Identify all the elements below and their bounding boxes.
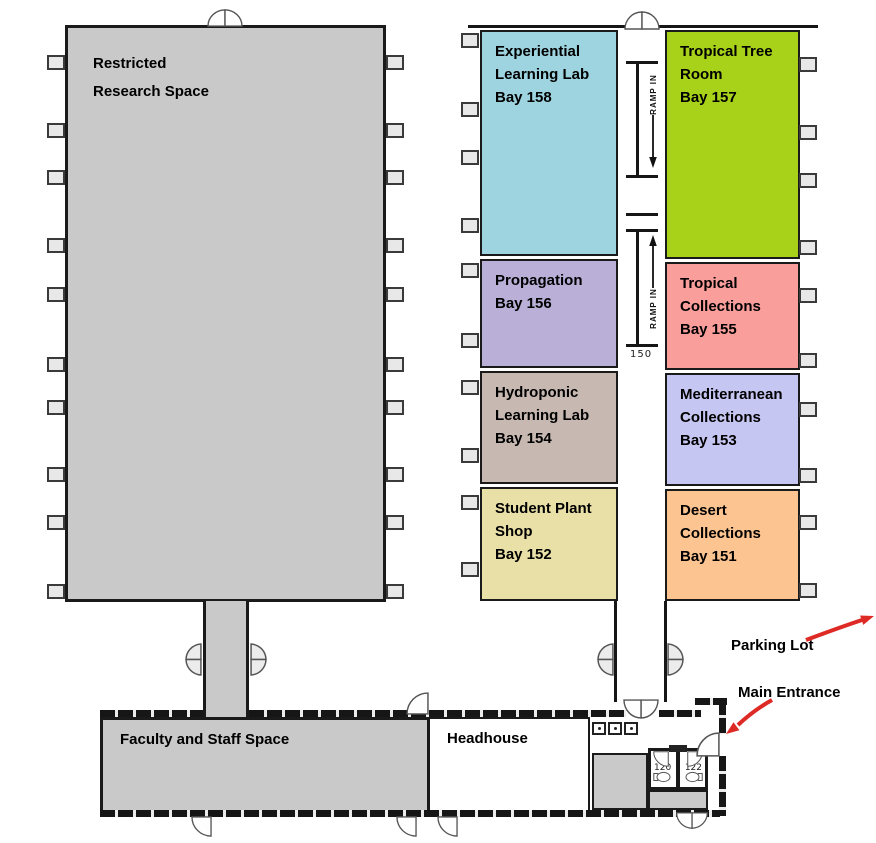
room-label: Tropical Tree Room Bay 157 xyxy=(667,32,798,109)
door-arc-icon xyxy=(653,751,669,767)
utility-slab xyxy=(648,790,708,810)
door-arc-icon xyxy=(191,816,212,837)
toilet-icon xyxy=(653,771,671,783)
window-vent xyxy=(47,467,65,482)
window-vent xyxy=(799,583,817,598)
window-vent xyxy=(386,467,404,482)
ramp-landing-edge xyxy=(626,175,658,178)
sink-fixture xyxy=(592,722,606,735)
window-vent xyxy=(799,468,817,483)
room-bay-156: Propagation Bay 156 xyxy=(480,259,618,368)
window-vent xyxy=(461,150,479,165)
window-vent xyxy=(461,218,479,233)
room-storage xyxy=(592,753,648,810)
window-vent xyxy=(47,287,65,302)
room-label: Faculty and Staff Space xyxy=(103,720,427,748)
window-vent xyxy=(461,380,479,395)
window-vent xyxy=(799,57,817,72)
room-label: Student Plant Shop Bay 152 xyxy=(482,489,616,566)
window-vent xyxy=(47,123,65,138)
window-vent xyxy=(47,400,65,415)
swing-door-icon xyxy=(185,643,202,676)
window-vent xyxy=(799,402,817,417)
ramp-in-label: RAMP IN xyxy=(633,74,673,114)
window-vent xyxy=(386,400,404,415)
room-bay-155: Tropical Collections Bay 155 xyxy=(665,262,800,370)
window-vent xyxy=(47,357,65,372)
double-door-icon xyxy=(205,8,245,27)
window-vent xyxy=(461,495,479,510)
window-vent xyxy=(47,55,65,70)
room-faculty-staff-space: Faculty and Staff Space xyxy=(100,717,430,813)
door-arc-icon xyxy=(437,816,458,837)
floor-plan: Restricted Research Space Experiential L… xyxy=(0,0,876,843)
toilet-icon xyxy=(685,771,703,783)
window-vent xyxy=(47,170,65,185)
window-vent xyxy=(386,123,404,138)
room-label: Headhouse xyxy=(430,719,588,747)
wall xyxy=(100,710,203,717)
window-vent xyxy=(461,562,479,577)
parking-lot-arrow-icon xyxy=(798,608,876,646)
sink-fixture xyxy=(669,745,687,752)
swing-door-icon xyxy=(667,643,684,676)
ramp-landing-edge xyxy=(626,229,658,232)
double-door-icon xyxy=(621,699,661,720)
room-label: Restricted Research Space xyxy=(68,28,383,106)
ramp-landing-edge xyxy=(626,213,658,216)
room-label: Mediterranean Collections Bay 153 xyxy=(667,375,798,452)
room-label: Experiential Learning Lab Bay 158 xyxy=(482,32,616,109)
ramp-direction-arrow-up-icon xyxy=(648,234,658,290)
ramp-direction-arrow-down-icon xyxy=(648,113,658,169)
door-arc-icon xyxy=(396,816,417,837)
sink-fixture xyxy=(624,722,638,735)
window-vent xyxy=(386,170,404,185)
window-vent xyxy=(386,357,404,372)
corridor-wall xyxy=(614,601,617,702)
wall xyxy=(719,756,726,816)
window-vent xyxy=(461,102,479,117)
ramp-in-label: RAMP IN xyxy=(633,288,673,328)
window-vent xyxy=(799,353,817,368)
window-vent xyxy=(386,584,404,599)
room-bay-153: Mediterranean Collections Bay 153 xyxy=(665,373,800,486)
room-bay-152: Student Plant Shop Bay 152 xyxy=(480,487,618,601)
connector-corridor xyxy=(203,601,249,717)
main-entrance-arrow-icon xyxy=(714,694,778,744)
window-vent xyxy=(799,173,817,188)
room-label: Hydroponic Learning Lab Bay 154 xyxy=(482,373,616,450)
room-headhouse: Headhouse xyxy=(428,717,590,813)
ramp-landing-edge xyxy=(626,344,658,347)
room-bay-154: Hydroponic Learning Lab Bay 154 xyxy=(480,371,618,484)
window-vent xyxy=(386,287,404,302)
window-vent xyxy=(386,515,404,530)
sink-fixture xyxy=(608,722,622,735)
window-vent xyxy=(47,584,65,599)
wall xyxy=(249,710,626,717)
room-label: Tropical Collections Bay 155 xyxy=(667,264,798,341)
double-door-icon xyxy=(622,10,662,30)
room-bay-158: Experiential Learning Lab Bay 158 xyxy=(480,30,618,256)
corridor-room-number: 150 xyxy=(630,349,652,360)
room-bay-151: Desert Collections Bay 151 xyxy=(665,489,800,601)
window-vent xyxy=(461,333,479,348)
window-vent xyxy=(47,238,65,253)
room-bay-157: Tropical Tree Room Bay 157 xyxy=(665,30,800,259)
door-arc-icon xyxy=(406,692,429,715)
swing-door-icon xyxy=(250,643,267,676)
window-vent xyxy=(461,33,479,48)
window-vent xyxy=(386,238,404,253)
swing-door-icon xyxy=(597,643,614,676)
window-vent xyxy=(386,55,404,70)
ramp-landing-edge xyxy=(626,61,658,64)
double-door-icon xyxy=(674,812,710,830)
window-vent xyxy=(799,288,817,303)
window-vent xyxy=(799,125,817,140)
room-label: Propagation Bay 156 xyxy=(482,261,616,315)
wall xyxy=(659,710,701,717)
window-vent xyxy=(799,515,817,530)
window-vent xyxy=(799,240,817,255)
window-vent xyxy=(461,448,479,463)
room-restricted-research-space: Restricted Research Space xyxy=(65,25,386,602)
window-vent xyxy=(47,515,65,530)
room-label: Desert Collections Bay 151 xyxy=(667,491,798,568)
window-vent xyxy=(461,263,479,278)
